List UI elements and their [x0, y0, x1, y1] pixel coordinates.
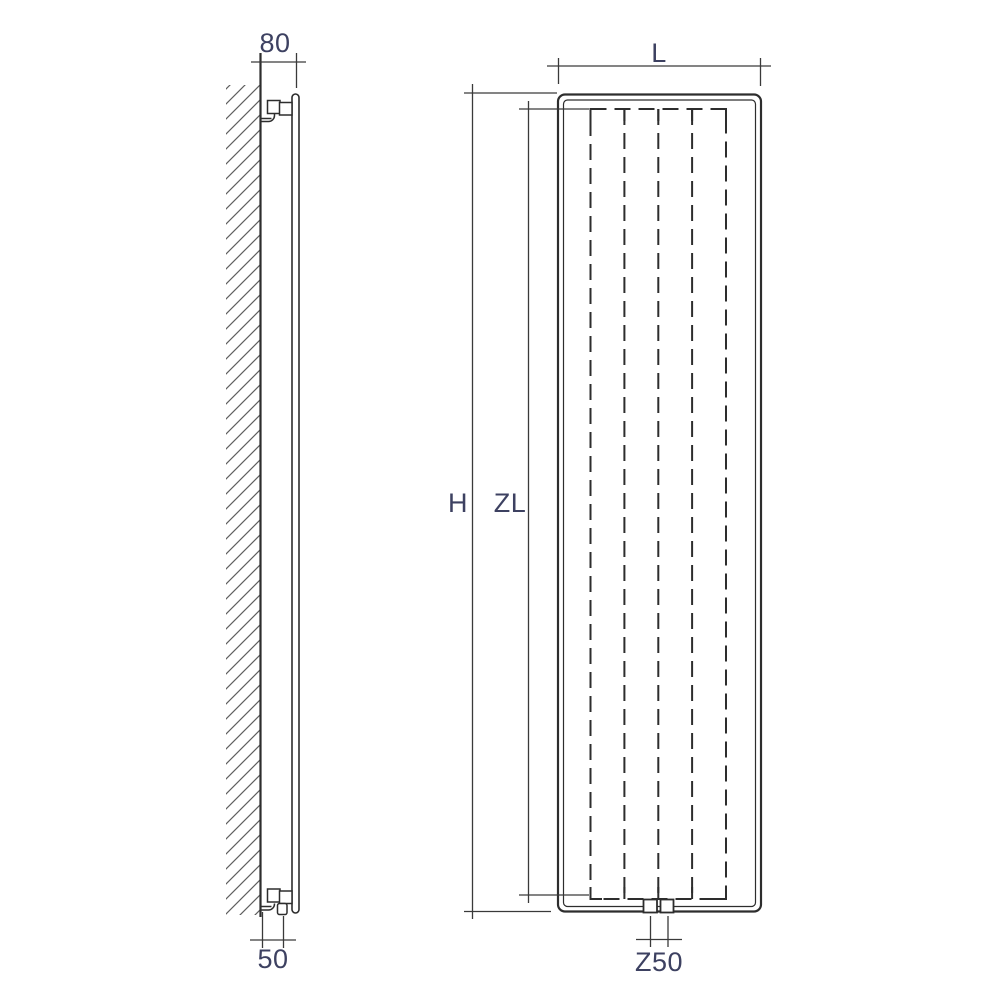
pipe-connection-side: [278, 904, 288, 915]
dimension-Z50-label: Z50: [635, 947, 683, 977]
pipe-connection-right: [661, 900, 674, 913]
dimension-H-label: H: [448, 488, 468, 518]
dimension-ZL-label: ZL: [494, 488, 527, 518]
wall-hatching: [226, 85, 260, 915]
dimension-50: 50: [250, 912, 296, 974]
dimension-Z50: Z50: [635, 916, 683, 977]
dimension-80-label: 80: [259, 28, 290, 58]
top-bracket-clamp: [280, 103, 293, 116]
bottom-bracket-head: [268, 889, 281, 902]
top-bracket: [261, 101, 293, 122]
diagram-canvas: 80 50: [0, 0, 1000, 1000]
dimension-L: L: [547, 38, 771, 86]
front-view: L H ZL Z50: [448, 38, 771, 977]
dimension-L-label: L: [651, 38, 667, 68]
radiator-outer-frame: [558, 95, 761, 912]
radiator-dimension-drawing: 80 50: [0, 0, 1000, 1000]
top-bracket-arm-outer: [261, 114, 275, 122]
side-view: 80 50: [226, 28, 306, 974]
dimension-50-label: 50: [257, 944, 288, 974]
dimension-80: 80: [251, 28, 306, 88]
top-bracket-head: [268, 101, 281, 114]
pipe-connection-left: [644, 900, 658, 913]
bottom-bracket: [261, 889, 293, 915]
radiator-panel-side: [292, 94, 299, 913]
bottom-bracket-clamp: [280, 891, 293, 904]
